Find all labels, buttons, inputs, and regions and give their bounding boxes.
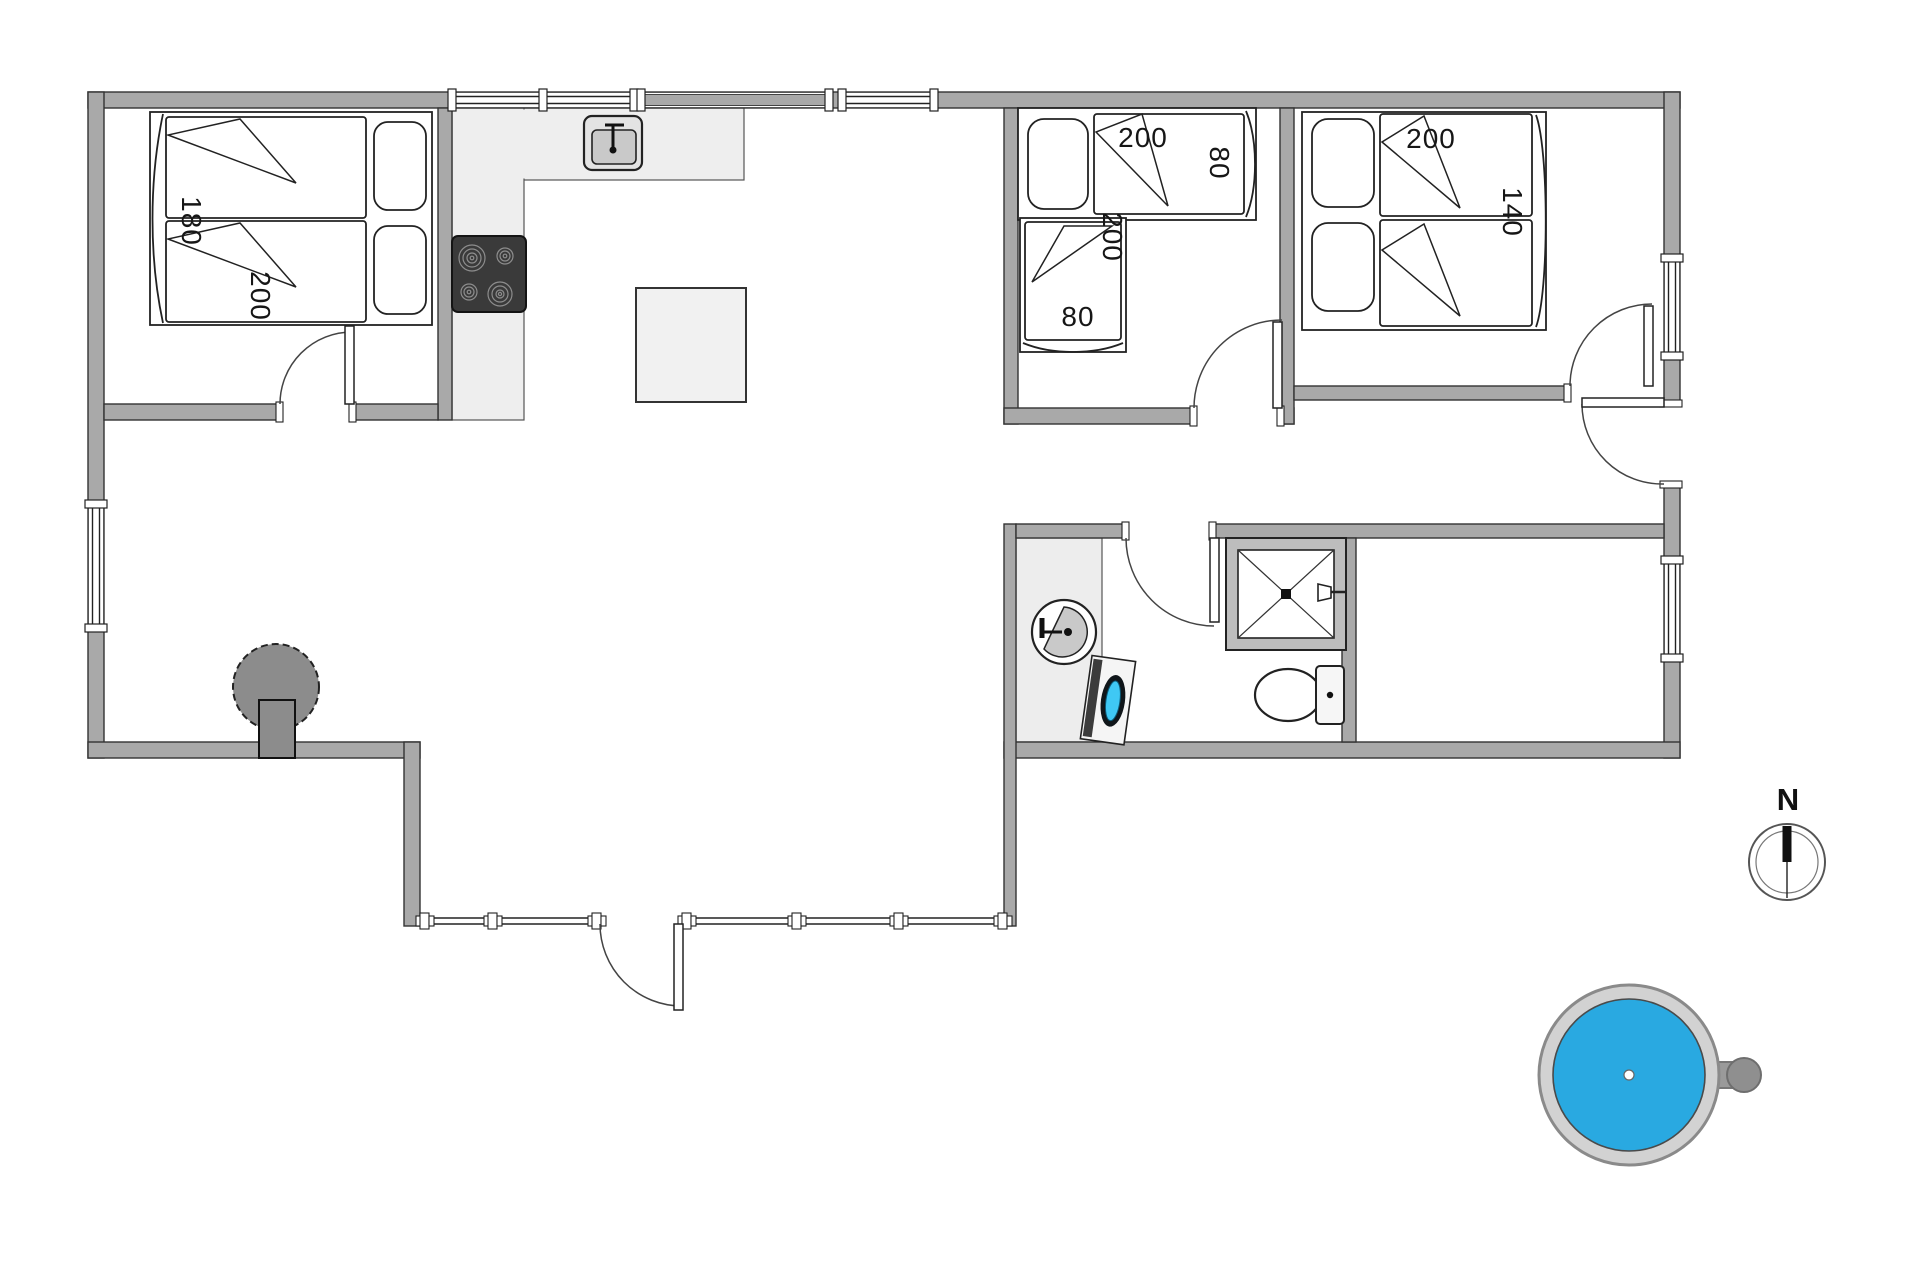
wall-bathroom-top [1016,524,1664,538]
door-east [1582,398,1682,488]
door-bedroom1 [276,326,356,422]
wall-south-west [88,742,420,758]
bed3-length-label: 200 [1406,123,1456,155]
bed3-width-label: 140 [1496,187,1528,237]
bed1-length-label: 200 [244,271,276,321]
washbasin [1032,600,1096,664]
compass [1749,824,1825,900]
floor-plan-drawing [0,0,1920,1280]
wall-bedroom3-south [1294,386,1568,400]
bed2b-length-label: 200 [1096,212,1128,262]
wall-bedroom1-right [438,108,452,420]
wall-bath-left [1004,524,1016,926]
bed2b-width-label: 80 [1061,301,1094,333]
door-bedroom2 [1190,320,1284,426]
hot-tub [1539,985,1761,1165]
floor-plan: 180 200 200 80 200 80 200 140 N [0,0,1920,1280]
toilet [1255,666,1344,724]
door-bedroom3 [1564,304,1653,402]
compass-needle-icon [1783,826,1792,862]
shower [1226,538,1346,650]
bed1-width-label: 180 [175,196,207,246]
wall-bedroom1-south [104,404,438,420]
door-bathroom [1122,522,1219,626]
kitchen-sink [584,116,642,170]
wall-left [88,92,104,758]
wood-stove [233,644,319,758]
stove-top [452,236,526,312]
glass-facade-south [416,913,1012,929]
wall-south-right [1004,742,1680,758]
compass-north-label: N [1777,782,1799,818]
bed2a-length-label: 200 [1118,122,1168,154]
dining-table [636,288,746,402]
bed2a-width-label: 80 [1203,146,1235,179]
door-entrance-south [600,924,683,1010]
wall-sw-step [404,742,420,926]
wall-bedroom2-left [1004,108,1018,424]
